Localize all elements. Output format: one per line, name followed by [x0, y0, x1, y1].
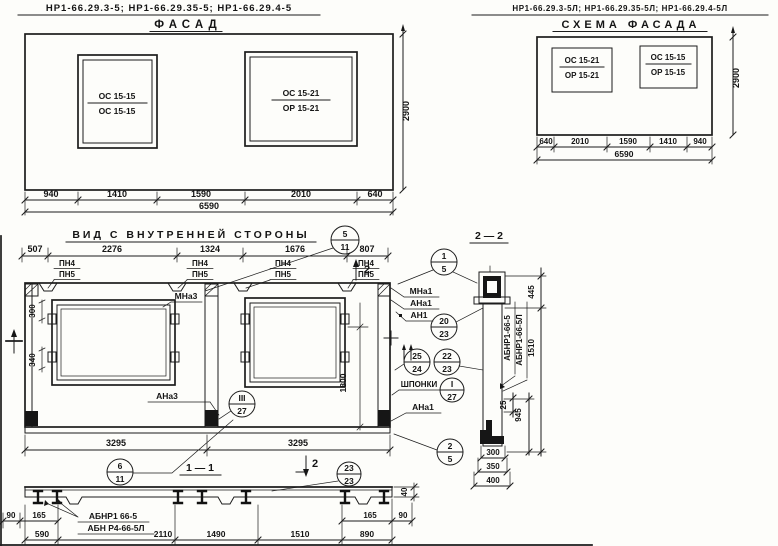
- section-2-2-view: 2 — 2 АБНР1-66-5 АБНР1-66-5Л 445 1510: [470, 230, 546, 489]
- pn4-label: ПН4: [59, 259, 76, 268]
- window-mark: ОС 15-21: [283, 88, 320, 98]
- dim: 940: [43, 189, 58, 199]
- window-mark: ОР 15-15: [651, 68, 686, 77]
- part1-label: АБНР1-66-5: [503, 315, 512, 361]
- section-2-2-label: 2 — 2: [475, 230, 503, 242]
- callout-20-23: 20 23: [431, 314, 457, 340]
- facade-codes: НР1-66.29.3-5; НР1-66.29.35-5; НР1-66.29…: [46, 3, 292, 14]
- dim: 1490: [207, 529, 226, 539]
- leader-1-5: [398, 270, 477, 284]
- dim: 300: [486, 448, 500, 457]
- callout-bottom: 11: [116, 474, 125, 484]
- inner-window-right-shape: [245, 298, 345, 387]
- section-1-1-view: АБНР1 66-5 АБН Р4-66-5Л 590 2110 1490 15…: [0, 483, 419, 544]
- leader-6-11: [133, 420, 233, 473]
- section-1-1-dimensions: 590 2110 1490 1510 890 90 165 165 90 40: [0, 483, 419, 544]
- leader-III-27: [219, 411, 231, 419]
- dim: 1410: [659, 137, 677, 146]
- window-mark: ОР 15-21: [283, 103, 320, 113]
- window-mark: ОС 15-15: [99, 106, 136, 116]
- callout-III-27: III 27: [229, 391, 255, 417]
- callout-bottom: 27: [447, 392, 457, 402]
- schema-dimensions-shape: [731, 26, 735, 33]
- section-2-2-part-labels-shape: [501, 376, 527, 391]
- facade-window-left: ОС 15-15 ОС 15-15: [78, 55, 157, 148]
- callout-bottom: 23: [442, 364, 452, 374]
- section-2-2-part-labels: АБНР1-66-5 АБНР1-66-5Л: [500, 302, 527, 391]
- callout-bottom: 24: [412, 364, 422, 374]
- mna1-label: МНа1: [410, 286, 433, 296]
- inner-title: ВИД С ВНУТРЕННЕЙ СТОРОНЫ: [72, 228, 309, 241]
- dim: 350: [486, 462, 500, 471]
- dim: 890: [360, 529, 374, 539]
- dim-height: 2900: [731, 68, 741, 88]
- drawing-sheet: НР1-66.29.3-5; НР1-66.29.35-5; НР1-66.29…: [0, 0, 778, 546]
- dim: 1590: [619, 137, 637, 146]
- leader-23-23: [272, 481, 338, 491]
- dim: 1676: [285, 244, 305, 254]
- dim: 90: [399, 511, 408, 520]
- facade-view: НР1-66.29.3-5; НР1-66.29.35-5; НР1-66.29…: [18, 3, 411, 215]
- dim: 1324: [200, 244, 220, 254]
- part-top-label: АБНР1 66-5: [89, 511, 137, 521]
- top-notches: [39, 283, 356, 291]
- dim: 40: [400, 487, 409, 496]
- ana1-lower-label: АНа1: [412, 402, 434, 412]
- dim-height: 2900: [401, 101, 411, 121]
- part2-label: АБНР1-66-5Л: [515, 314, 524, 366]
- inner-window-left-shape: [52, 300, 175, 385]
- cross-mark: [384, 331, 398, 345]
- shponki-label: ШПОНКИ: [401, 380, 438, 389]
- dim-total: 6590: [615, 149, 634, 159]
- section-2-2-body-shape: [483, 304, 502, 446]
- schema-window-left: ОС 15-21 ОР 15-21: [552, 48, 612, 92]
- dim: 25: [499, 400, 508, 409]
- survey-marks: [384, 331, 413, 360]
- dim: 640: [539, 137, 553, 146]
- callout-bottom: 11: [341, 242, 350, 252]
- leader-20-23: [456, 308, 483, 322]
- section-1-1-view-shape: [44, 500, 49, 506]
- callout-top: 1: [442, 251, 447, 261]
- schema-codes: НР1-66.29.3-5Л; НР1-66.29.35-5Л; НР1-66.…: [512, 4, 727, 13]
- strip-underside: [25, 497, 392, 504]
- dim-total: 6590: [199, 201, 219, 211]
- part-labels-shape: [392, 390, 440, 395]
- inner-window-left: [48, 300, 179, 385]
- callout-top: 23: [344, 463, 354, 473]
- dim: 2010: [291, 189, 311, 199]
- cut-2-top-number: 2: [364, 264, 370, 276]
- callout-bottom: 27: [237, 406, 247, 416]
- dim: 2110: [154, 529, 173, 539]
- leader-5-11: [205, 248, 333, 291]
- dim: 2276: [102, 244, 122, 254]
- section-2-2-dimensions: 445 1510 945 25 300 350 400: [471, 268, 546, 489]
- anchor-blocks-shape: [25, 411, 38, 426]
- dim: 2010: [571, 137, 589, 146]
- callout-top: 6: [118, 461, 123, 471]
- callout-top: 2: [448, 441, 453, 451]
- part-labels-shape: [399, 314, 402, 317]
- facade-window-right: ОС 15-21 ОР 15-21: [245, 52, 357, 146]
- pn5-label: ПН5: [275, 270, 292, 279]
- schema-window-right: ОС 15-15 ОР 15-15: [640, 46, 697, 88]
- inner-window-left-shape: [57, 305, 170, 380]
- pn4-label: ПН4: [192, 259, 209, 268]
- facade-window-left-shape: [83, 60, 152, 143]
- callout-2-5: 2 5: [437, 439, 463, 465]
- facade-schema-view: НР1-66.29.3-5Л; НР1-66.29.35-5Л; НР1-66.…: [472, 4, 768, 164]
- an1-label: АН1: [410, 310, 427, 320]
- dim: 1510: [527, 339, 536, 357]
- callout-top: I: [451, 379, 453, 389]
- technical-drawing: НР1-66.29.3-5; НР1-66.29.35-5; НР1-66.29…: [0, 0, 778, 546]
- window-mark: ОС 15-15: [99, 91, 136, 101]
- facade-window-right-shape: [245, 52, 357, 146]
- callout-top: 22: [442, 351, 452, 361]
- dim: 590: [35, 529, 49, 539]
- facade-title: ФАСАД: [154, 19, 222, 31]
- pn5-label: ПН5: [192, 270, 209, 279]
- schema-dimensions: 640 2010 1590 1410 940 6590 2900: [534, 26, 741, 164]
- anchor-blocks-shape: [378, 410, 390, 426]
- facade-window-right-shape: [250, 57, 352, 141]
- window-mark: ОС 15-15: [651, 53, 686, 62]
- pn5-label: ПН5: [59, 270, 76, 279]
- dim: 3295: [106, 438, 126, 448]
- dim: 507: [27, 244, 42, 254]
- inner-bottom-dimensions-shape: [25, 435, 390, 456]
- dim: 807: [359, 244, 374, 254]
- callout-5-11: 5 11: [331, 226, 359, 254]
- mna3-label: МНа3: [175, 291, 198, 301]
- dim: 1410: [107, 189, 127, 199]
- inner-window-right-shape: [250, 303, 340, 382]
- callout-top: 25: [412, 351, 422, 361]
- callout-top: 5: [343, 229, 348, 239]
- survey-marks-shape: [409, 344, 413, 350]
- anchor-blocks-shape: [378, 284, 390, 296]
- anchor-blocks-shape: [205, 410, 218, 426]
- inner-side-dims-shape: [348, 303, 368, 430]
- inner-window-right: [241, 298, 349, 387]
- callout-bottom: 23: [344, 476, 354, 486]
- cut-2-bottom-arrow: [303, 469, 309, 477]
- dim: 3295: [288, 438, 308, 448]
- dim: 1800: [338, 373, 348, 392]
- section-1-1-view-shape: [25, 487, 392, 497]
- callout-bottom: 23: [439, 329, 449, 339]
- schema-panel: [537, 37, 712, 135]
- panel-base-lines: [25, 427, 390, 433]
- inner-side-dims-shape: [39, 300, 45, 323]
- part-labels-shape: [391, 413, 441, 421]
- ana1-label: АНа1: [410, 298, 432, 308]
- dim: 340: [28, 353, 37, 367]
- part-labels: МНа3 АНа3 МНа1 АНа1 АН1 АНа1 ШПОНКИ: [148, 286, 441, 421]
- leader-2-5: [394, 434, 437, 450]
- callout-6-11: 6 11: [107, 459, 133, 485]
- section-2-2-body-shape: [487, 281, 497, 293]
- inner-window-right-shape: [254, 307, 336, 378]
- schema-window-left-shape: [552, 48, 612, 92]
- dim: 1590: [191, 189, 211, 199]
- dim: 165: [32, 511, 46, 520]
- cut-1-arrow: [11, 329, 17, 337]
- inner-window-left-shape: [61, 309, 166, 376]
- leader-25-24: [395, 364, 404, 370]
- section-1-1-label: 1 — 1: [186, 462, 214, 474]
- inner-side-dims: 300 340 1800: [28, 300, 368, 430]
- survey-marks-shape: [402, 344, 406, 350]
- inner-side-dims-shape: [39, 347, 45, 372]
- dim: 640: [367, 189, 382, 199]
- dim: 400: [486, 476, 500, 485]
- ana3-label: АНа3: [156, 391, 178, 401]
- facade-window-left-shape: [78, 55, 157, 148]
- dim: 1510: [291, 529, 310, 539]
- dim: 300: [28, 304, 37, 318]
- inner-bottom-dimensions: 3295 3295: [22, 435, 393, 456]
- callout-I-27: I 27: [440, 378, 464, 402]
- leader-22-23: [459, 366, 483, 370]
- cut-2-bottom-number: 2: [312, 458, 318, 470]
- callout-23-23: 23 23: [337, 462, 361, 486]
- callout-22-23: 22 23: [434, 349, 460, 375]
- dim: 445: [527, 285, 536, 299]
- dim: 165: [363, 511, 377, 520]
- part-bottom-label: АБН Р4-66-5Л: [88, 523, 145, 533]
- dim: 90: [7, 511, 16, 520]
- callout-1-5: 1 5: [431, 249, 457, 275]
- callout-top: III: [238, 393, 245, 403]
- callout-top: 20: [439, 316, 449, 326]
- schema-title: СХЕМА ФАСАДА: [562, 19, 701, 31]
- callout-bottom: 5: [448, 454, 453, 464]
- window-mark: ОС 15-21: [565, 56, 600, 65]
- window-mark: ОР 15-21: [565, 71, 600, 80]
- inner-view: ВИД С ВНУТРЕННЕЙ СТОРОНЫ 507 2276 1324 1…: [6, 228, 441, 477]
- section-2-2-body-shape: [480, 420, 504, 444]
- callout-25-24: 25 24: [404, 349, 430, 375]
- dim: 940: [693, 137, 707, 146]
- facade-dimensions-shape: [401, 24, 405, 31]
- callout-bottom: 5: [442, 264, 447, 274]
